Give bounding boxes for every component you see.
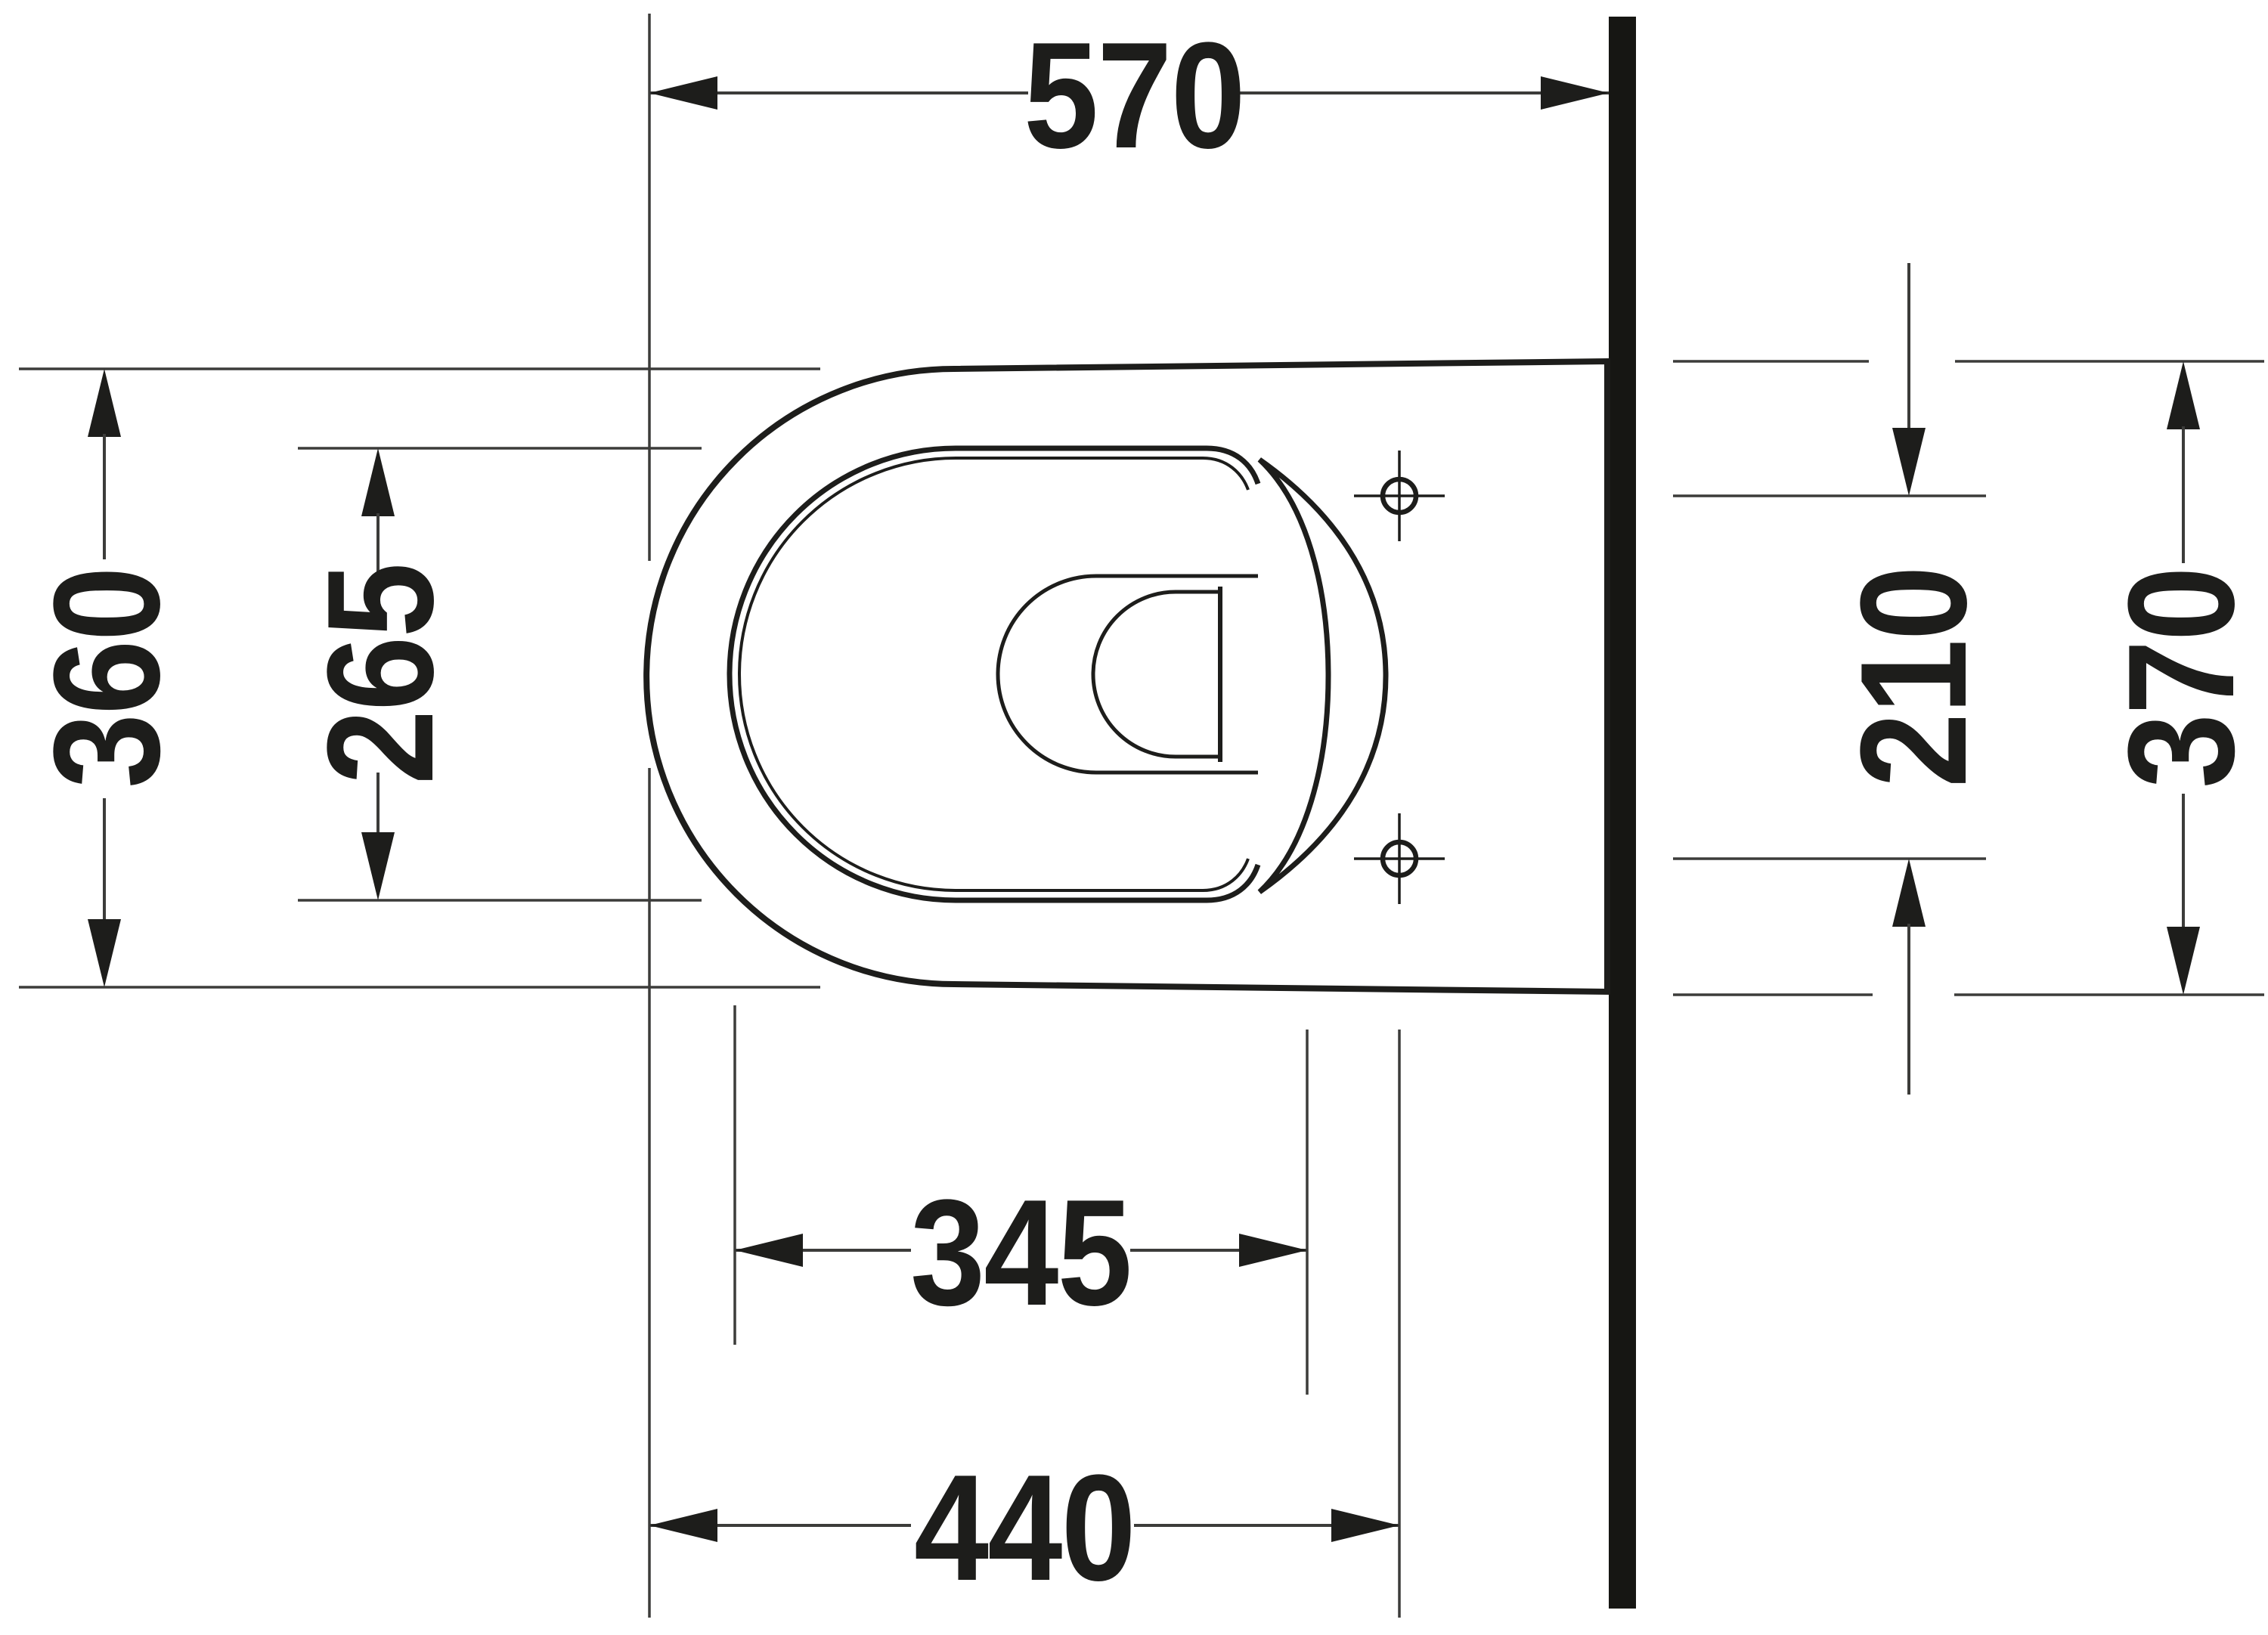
toilet-top-view-drawing: 570 360 265 210 370 345 — [0, 0, 2268, 1635]
dim-265-arrow-down — [361, 832, 395, 900]
dim-210-label: 210 — [1830, 567, 1998, 788]
dim-360-arrow-up — [88, 369, 121, 437]
dim-570-arrow-right — [1541, 76, 1609, 110]
dim-265: 265 — [296, 448, 465, 900]
dim-210-arrow-down — [1892, 428, 1926, 496]
dim-360: 360 — [23, 369, 191, 987]
dim-370: 370 — [2097, 361, 2266, 995]
dim-265-label: 265 — [296, 564, 465, 785]
dim-440-arrow-left — [649, 1509, 717, 1542]
dim-265-arrow-up — [361, 448, 395, 516]
dim-370-label: 370 — [2097, 568, 2266, 788]
dim-570-label: 570 — [1024, 11, 1244, 180]
mounting-hole-bottom — [1354, 813, 1445, 904]
dim-570: 570 — [649, 11, 1609, 180]
dim-210: 210 — [1830, 263, 1998, 1095]
drawing-canvas: 570 360 265 210 370 345 — [0, 0, 2268, 1635]
toilet-body — [646, 361, 1607, 992]
dim-570-arrow-left — [649, 76, 717, 110]
dim-210-arrow-up — [1892, 859, 1926, 927]
dim-370-arrow-up — [2167, 361, 2200, 429]
dim-345: 345 — [735, 1169, 1307, 1337]
mounting-hole-top — [1354, 451, 1445, 541]
dim-370-arrow-down — [2167, 927, 2200, 995]
dim-345-arrow-right — [1239, 1234, 1307, 1267]
extension-lines — [19, 14, 2264, 1618]
toilet-outline — [646, 361, 1607, 992]
bowl-sump-outline — [1093, 592, 1220, 757]
dim-345-label: 345 — [910, 1169, 1131, 1337]
seat-ring-inner — [739, 458, 1248, 890]
wall-line — [1609, 17, 1636, 1609]
dim-360-arrow-down — [88, 919, 121, 987]
dim-360-label: 360 — [23, 568, 191, 788]
dim-440-label: 440 — [914, 1444, 1135, 1612]
dim-440: 440 — [649, 1444, 1399, 1612]
dim-440-arrow-right — [1331, 1509, 1399, 1542]
seat-lid-crescent — [1259, 460, 1386, 892]
dim-345-arrow-left — [735, 1234, 803, 1267]
